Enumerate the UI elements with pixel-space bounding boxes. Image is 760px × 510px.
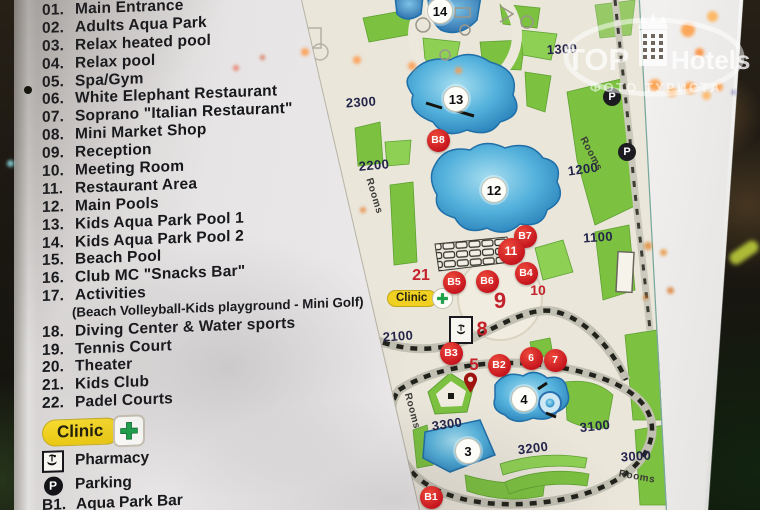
sign-mark-dot — [24, 86, 32, 94]
legend-item-number: 19. — [42, 340, 75, 359]
legend-item-number: 03. — [42, 37, 75, 56]
sign-board: 01.Main Entrance02.Adults Aqua Park03.Re… — [0, 0, 760, 510]
light-bokeh — [7, 160, 14, 167]
pharmacy-icon — [42, 450, 64, 473]
legend-item-number: 18. — [42, 322, 75, 341]
legend-item-number: 06. — [42, 90, 75, 109]
legend-panel: 01.Main Entrance02.Adults Aqua Park03.Re… — [42, 0, 382, 510]
legend-item-number: 20. — [42, 358, 75, 377]
legend-item-number: 13. — [42, 215, 75, 234]
parking-label: Parking — [75, 474, 132, 494]
legend-item-number: B1. — [42, 496, 76, 510]
legend-item-number: 08. — [42, 126, 75, 145]
legend-item-number: 14. — [42, 233, 75, 252]
legend-item-number: 17. — [42, 287, 75, 306]
clinic-cross-icon — [113, 414, 145, 447]
legend-item-number: 10. — [42, 162, 75, 181]
legend-item-number: 04. — [42, 54, 75, 73]
legend-item-number: 16. — [42, 269, 75, 288]
parking-icon: P — [44, 476, 63, 496]
pharmacy-label: Pharmacy — [75, 449, 149, 470]
light-streak — [727, 238, 760, 267]
swirl-island — [546, 399, 555, 408]
legend-item-number: 12. — [42, 198, 75, 217]
legend-item-number: 05. — [42, 72, 75, 91]
legend-item-number: 09. — [42, 144, 75, 163]
legend-item-number: 15. — [42, 251, 75, 270]
legend-item-number: 11. — [42, 180, 75, 199]
legend-item-number: 22. — [42, 394, 75, 413]
legend-item-number: 02. — [42, 19, 75, 38]
legend-list: 01.Main Entrance02.Adults Aqua Park03.Re… — [42, 0, 382, 413]
legend-item-number: 21. — [42, 376, 75, 395]
legend-item-number: 07. — [42, 108, 75, 127]
clinic-pill: Clinic — [42, 417, 120, 447]
legend-item-label: Aqua Park Bar — [76, 492, 183, 510]
legend-item-label: Tennis Court — [75, 337, 172, 359]
legend-item-number: 01. — [42, 1, 75, 20]
legend-item-label: Padel Courts — [75, 390, 173, 412]
pool-adjacent-shape — [395, 0, 423, 19]
legend-item-label: Theater — [75, 356, 132, 376]
resort-sign-photo: 01.Main Entrance02.Adults Aqua Park03.Re… — [0, 0, 760, 510]
